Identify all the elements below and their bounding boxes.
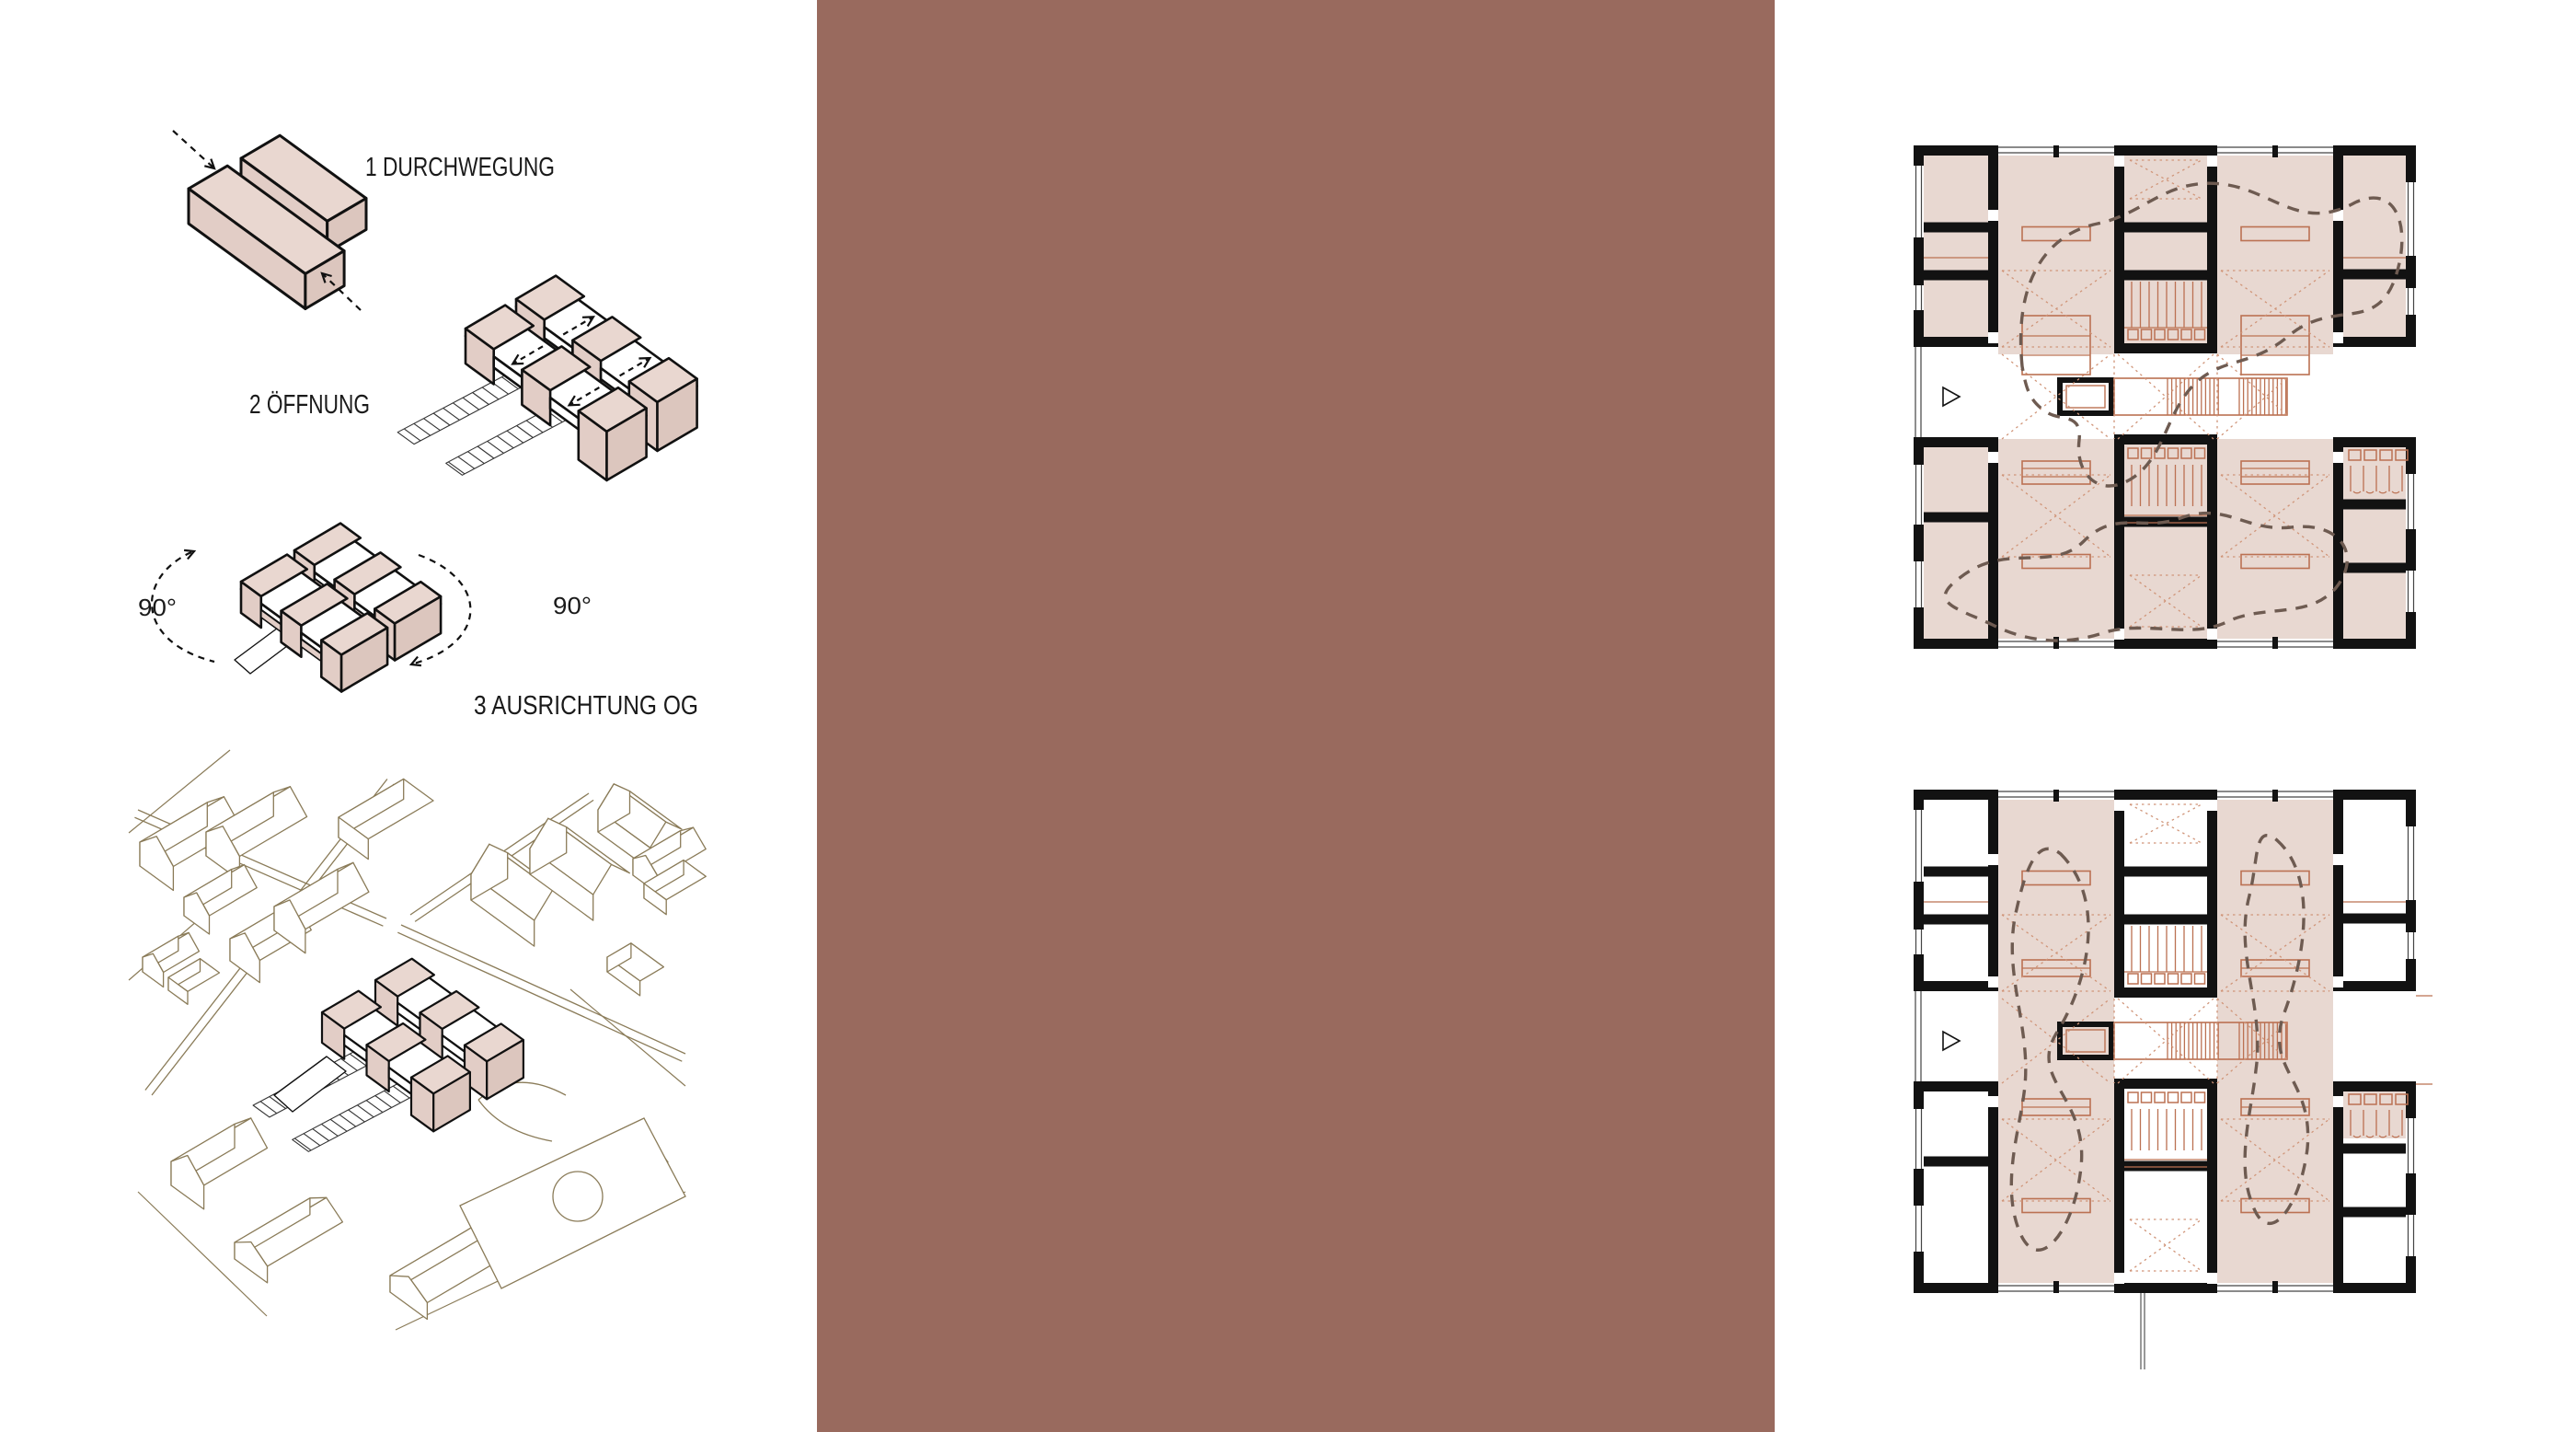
svg-text:90°: 90°: [553, 592, 592, 619]
svg-text:90°: 90°: [138, 594, 177, 621]
svg-text:2 ÖFFNUNG: 2 ÖFFNUNG: [249, 390, 370, 420]
svg-text:1 DURCHWEGUNG: 1 DURCHWEGUNG: [365, 153, 555, 182]
svg-text:3 AUSRICHTUNG OG: 3 AUSRICHTUNG OG: [474, 691, 698, 721]
